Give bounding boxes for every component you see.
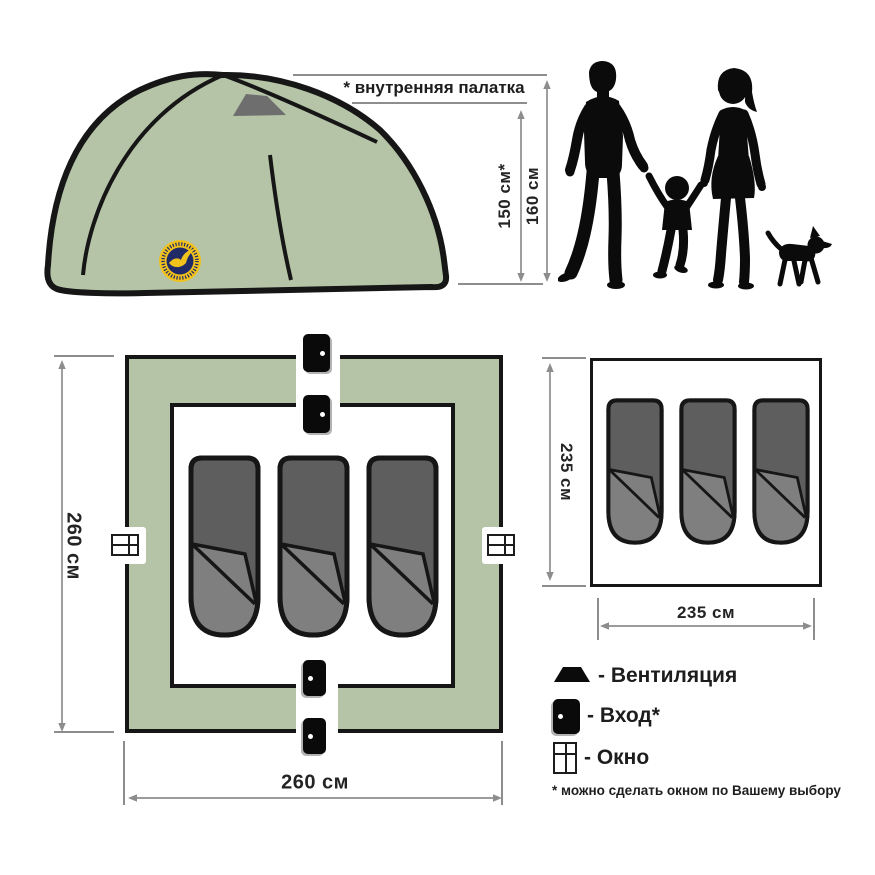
child-silhouette xyxy=(649,176,701,279)
dimension-arrow-235-vertical xyxy=(544,363,556,581)
extension-line xyxy=(813,598,815,640)
height-150-label: 150 см* xyxy=(495,163,515,228)
brand-logo-badge xyxy=(159,240,201,282)
window-icon-left xyxy=(111,534,139,556)
ground-line xyxy=(458,283,543,285)
extension-line xyxy=(54,355,114,357)
window-mullion-v xyxy=(128,536,130,554)
outer-plan-width-label: 260 см xyxy=(281,772,349,795)
door-icon-top-outer xyxy=(303,334,330,372)
window-mullion-h xyxy=(489,544,513,546)
inner-plan-height-label: 235 см xyxy=(556,443,576,501)
window-mullion-h xyxy=(113,544,137,546)
outer-plan-height-label: 260 см xyxy=(62,512,85,580)
inner-plan-width-label: 235 см xyxy=(677,603,735,623)
man-silhouette xyxy=(558,61,649,289)
window-icon-right xyxy=(487,534,515,556)
sleeping-bag xyxy=(188,455,261,638)
door-icon xyxy=(553,699,580,734)
window-icon xyxy=(553,742,577,774)
family-silhouette-graphic xyxy=(558,58,848,293)
extension-line xyxy=(542,357,586,359)
tent-spec-infographic: * внутренняя палатка 150 см* 160 см xyxy=(0,0,875,875)
legend-door-label: - Вход* xyxy=(587,704,660,728)
height-160-label: 160 см xyxy=(523,167,543,225)
inner-tent-note: * внутренняя палатка xyxy=(343,78,524,98)
door-knob xyxy=(320,351,325,356)
sleeping-bag xyxy=(606,398,664,545)
vent-icon xyxy=(553,666,591,683)
window-mullion-v xyxy=(504,536,506,554)
extension-line xyxy=(123,741,125,805)
sleeping-bag xyxy=(277,455,350,638)
window-mullion-v xyxy=(565,744,567,772)
note-leader-line-bottom xyxy=(352,102,527,104)
sleeping-bag xyxy=(366,455,439,638)
note-leader-line-top xyxy=(293,74,547,76)
door-knob xyxy=(308,676,313,681)
door-knob xyxy=(308,734,313,739)
sleeping-bag xyxy=(679,398,737,545)
legend-footnote: * можно сделать окном по Вашему выбору xyxy=(552,783,841,798)
woman-silhouette xyxy=(700,68,766,290)
door-knob xyxy=(320,412,325,417)
door-knob xyxy=(558,714,563,719)
legend-window-label: - Окно xyxy=(584,746,649,770)
legend-vent-label: - Вентиляция xyxy=(598,664,737,688)
extension-line xyxy=(542,585,586,587)
door-icon-bottom-inner xyxy=(303,660,326,696)
extension-line xyxy=(597,598,599,640)
door-icon-top-inner xyxy=(303,395,330,433)
door-icon-bottom-outer xyxy=(303,718,326,754)
sleeping-bag xyxy=(752,398,810,545)
dog-silhouette xyxy=(768,226,832,284)
